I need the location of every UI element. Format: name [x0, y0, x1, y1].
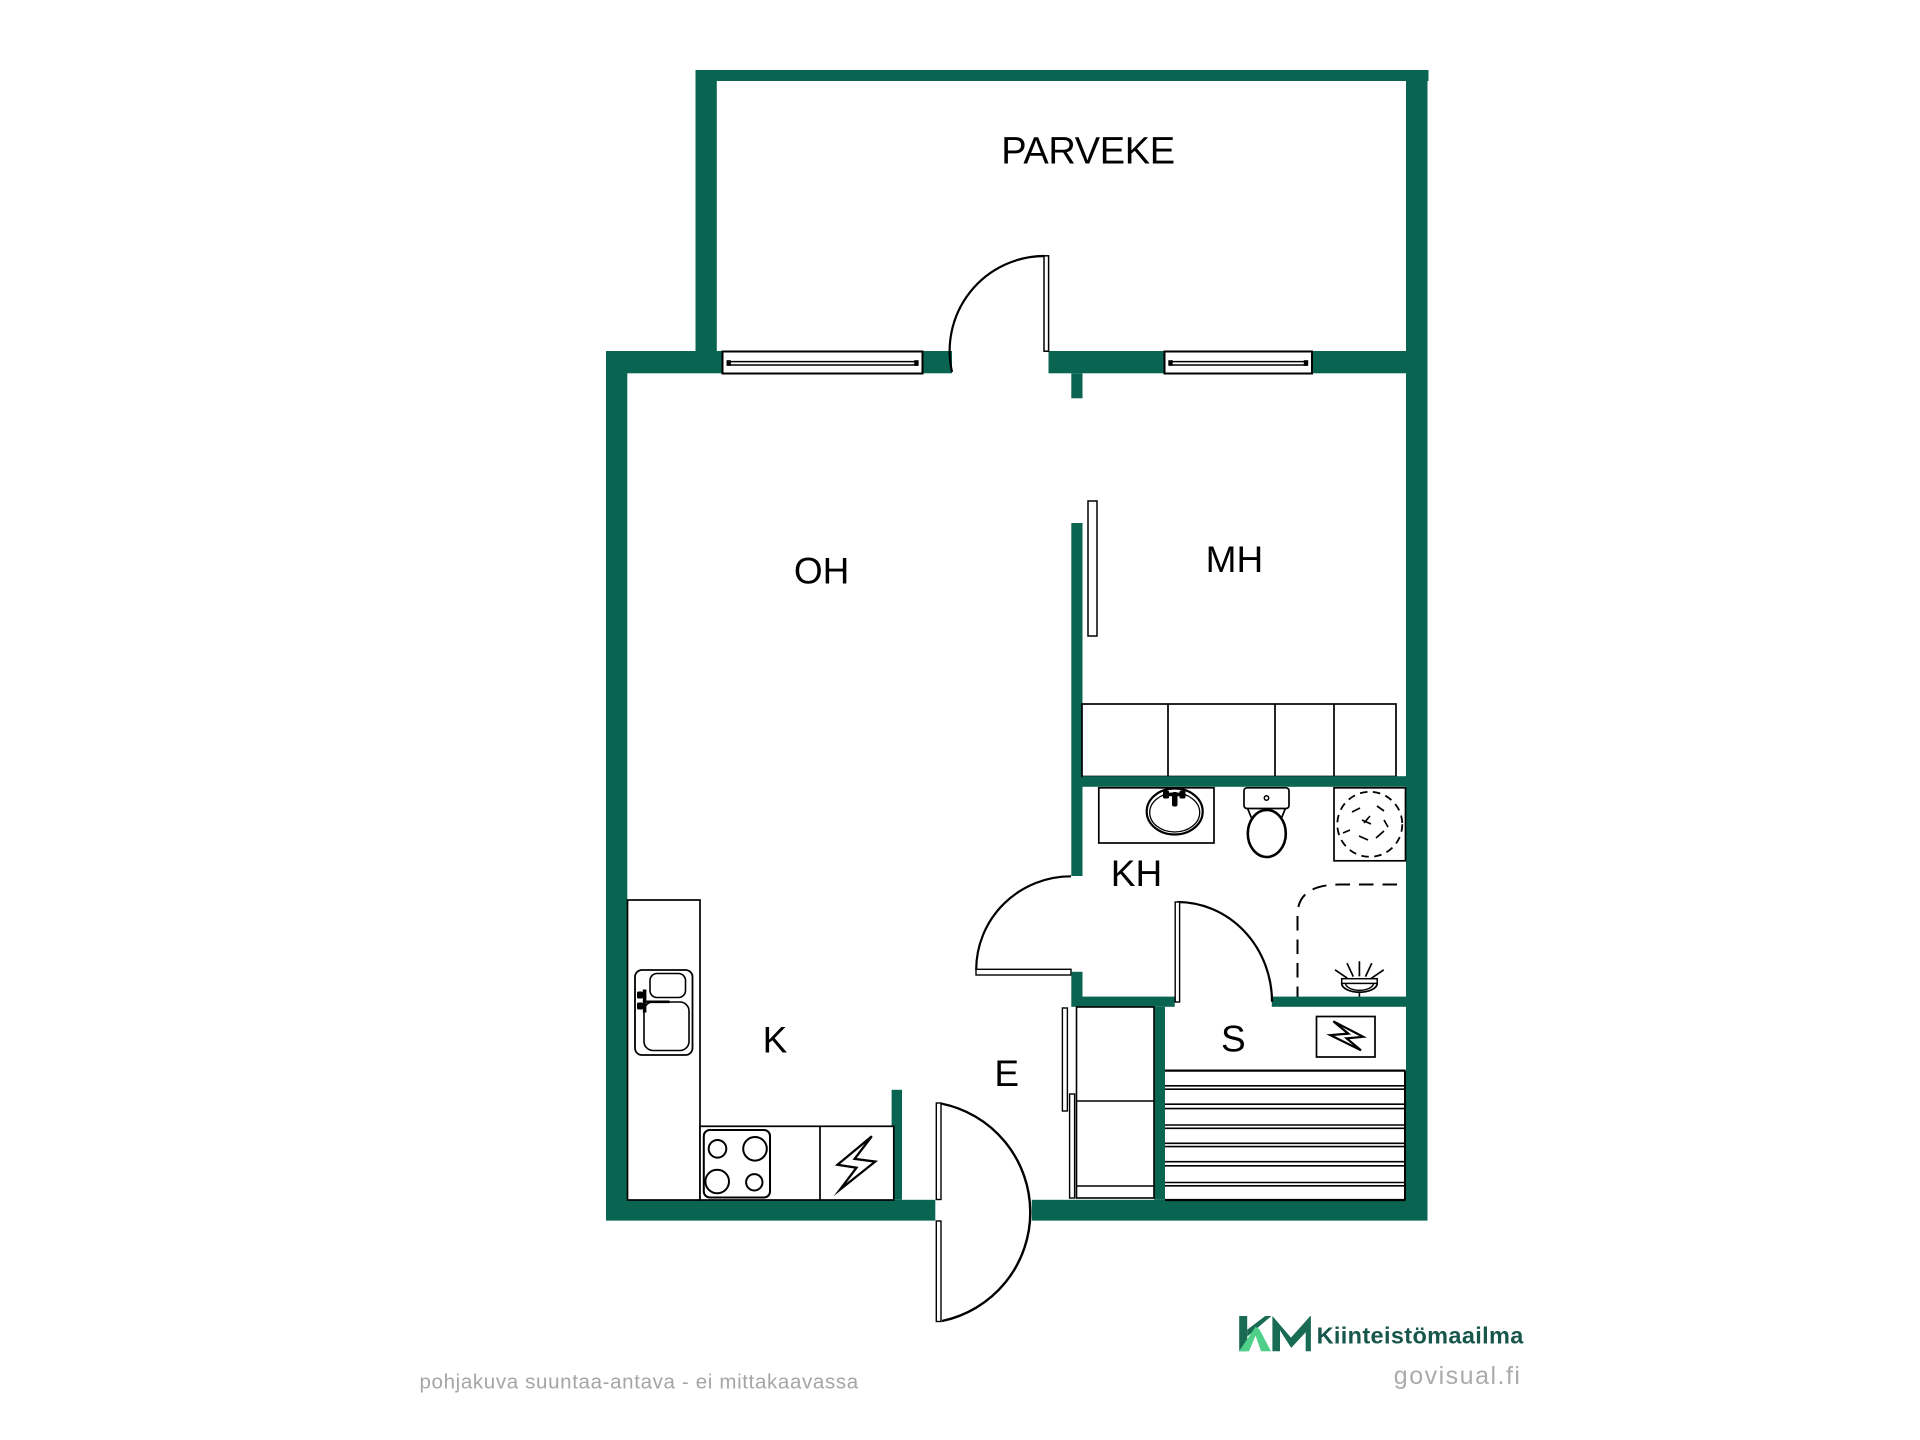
svg-text:govisual.fi: govisual.fi: [1394, 1362, 1522, 1390]
svg-text:MH: MH: [1206, 539, 1264, 580]
svg-text:Kiinteistömaailma: Kiinteistömaailma: [1317, 1323, 1525, 1349]
svg-text:K: K: [763, 1020, 788, 1061]
svg-text:KH: KH: [1111, 853, 1162, 894]
svg-text:S: S: [1221, 1019, 1246, 1060]
svg-text:pohjakuva suuntaa-antava - ei: pohjakuva suuntaa-antava - ei mittakaava…: [420, 1371, 859, 1394]
svg-text:E: E: [994, 1053, 1019, 1094]
svg-text:PARVEKE: PARVEKE: [1001, 131, 1175, 173]
svg-text:OH: OH: [794, 551, 850, 592]
